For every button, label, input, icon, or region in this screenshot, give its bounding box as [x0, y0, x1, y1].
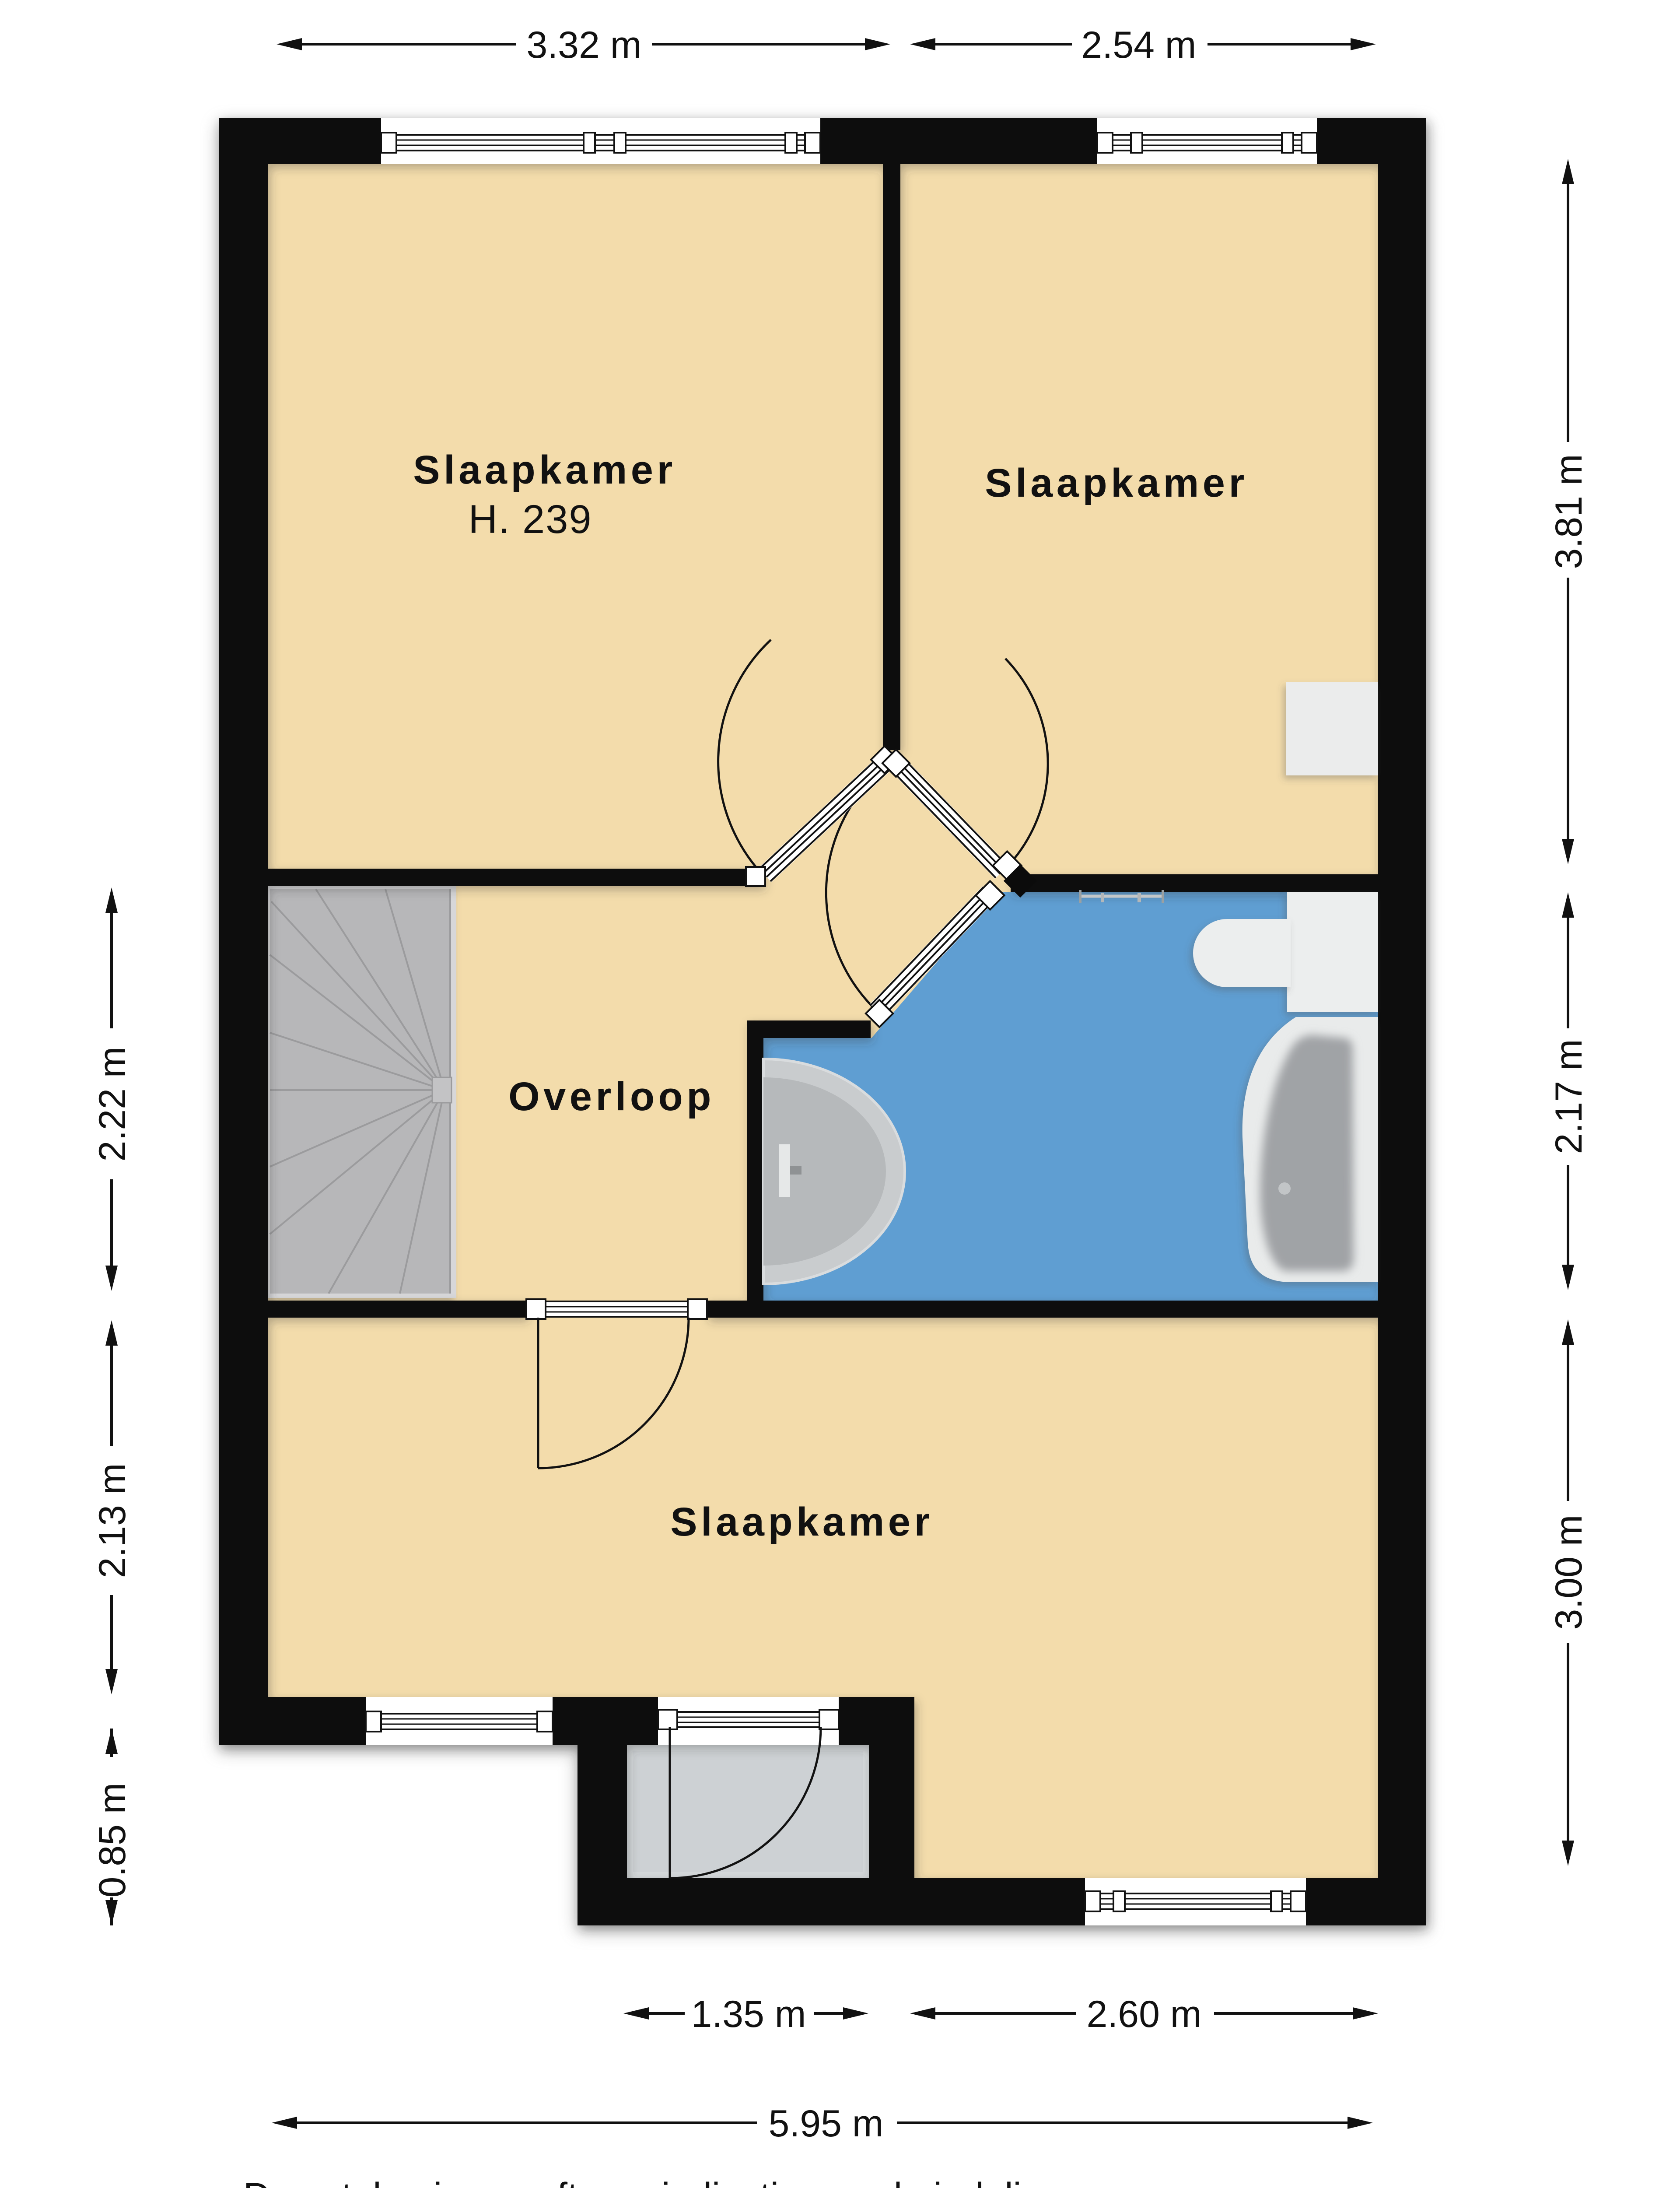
svg-text:2.54 m: 2.54 m	[1081, 24, 1197, 66]
svg-text:5.95 m: 5.95 m	[769, 2103, 884, 2145]
svg-text:2.13 m: 2.13 m	[91, 1463, 133, 1578]
svg-text:Slaapkamer: Slaapkamer	[413, 448, 676, 492]
svg-text:Slaapkamer: Slaapkamer	[985, 461, 1248, 505]
svg-text:H. 239: H. 239	[468, 497, 592, 542]
svg-text:2.17 m: 2.17 m	[1548, 1039, 1590, 1154]
svg-text:Deze tekening geeft een indica: Deze tekening geeft een indicatie van de…	[243, 2175, 1074, 2188]
svg-text:3.81 m: 3.81 m	[1548, 454, 1590, 569]
svg-text:1.35 m: 1.35 m	[691, 1993, 806, 2035]
svg-text:2.22 m: 2.22 m	[91, 1047, 133, 1162]
svg-text:Overloop: Overloop	[508, 1074, 715, 1119]
svg-text:3.32 m: 3.32 m	[527, 24, 642, 66]
svg-text:Slaapkamer: Slaapkamer	[670, 1500, 934, 1544]
svg-text:3.00 m: 3.00 m	[1548, 1515, 1590, 1630]
svg-text:2.60 m: 2.60 m	[1087, 1993, 1202, 2035]
svg-text:0.85 m: 0.85 m	[91, 1783, 133, 1898]
